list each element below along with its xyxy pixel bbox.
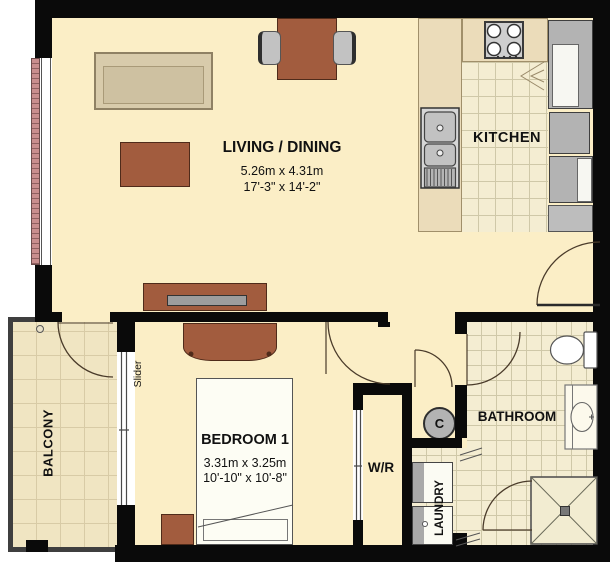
wall-column-nook-bottom [402, 438, 462, 448]
closet-label: W/R [350, 460, 412, 476]
kitchen-tall-cabinet [548, 20, 593, 109]
wall-bathroom-west-upper [455, 322, 467, 334]
sofa-seat [103, 66, 204, 104]
wall-living-bedroom-b [110, 312, 388, 322]
wall-left-upper [35, 18, 52, 58]
balcony-label: BALCONY [41, 409, 56, 477]
living-dining-label: LIVING / DINING [182, 139, 382, 157]
cabinet-door-panel [552, 44, 579, 107]
living-dining-dim-metric: 5.26m x 4.31m [182, 164, 382, 178]
wall-bottom [115, 545, 593, 562]
bedroom-dim-imperial: 10'-10" x 10'-8" [164, 471, 326, 485]
wall-left-lower [35, 265, 52, 322]
dryer-side [413, 507, 424, 544]
dining-chair-left [258, 31, 281, 65]
column-marker: C [423, 407, 456, 440]
nightstand [161, 514, 194, 545]
coffee-table [120, 142, 190, 187]
stove-cooktop [484, 21, 524, 59]
wall-balcony-bedroom-bottom [117, 505, 135, 545]
wall-hall-bathroom [455, 312, 593, 322]
washer [412, 462, 453, 503]
tv-console [143, 283, 267, 311]
bed-pillow [203, 519, 288, 541]
window-sill-hatch [31, 58, 40, 265]
kitchen-counter-left [418, 18, 462, 232]
balcony-railing-left [8, 317, 13, 552]
laundry-label: LAUNDRY [434, 480, 446, 536]
balcony-post [26, 540, 48, 552]
living-dining-dim-imperial: 17'-3" x 14'-2" [182, 180, 382, 194]
slider-label: Slider [132, 361, 144, 388]
bedroom-label: BEDROOM 1 [164, 432, 326, 449]
balcony-railing-bottom [8, 547, 117, 552]
wall-balcony-bedroom-top [117, 322, 135, 352]
wall-closet-west-upper [353, 383, 363, 410]
dining-chair-right [333, 31, 356, 65]
washer-side [413, 463, 424, 502]
dresser [183, 323, 277, 361]
column-label: C [435, 416, 444, 431]
wall-right [593, 0, 610, 562]
wall-closet-west-lower [353, 520, 363, 545]
window-strip [40, 58, 52, 265]
wall-top [35, 0, 610, 18]
kitchen-floor [462, 62, 548, 232]
bathroom-label: BATHROOM [455, 409, 579, 425]
appliance-door-panel [577, 158, 592, 202]
bedroom-dim-metric: 3.31m x 3.25m [164, 456, 326, 470]
dryer [412, 506, 453, 545]
sofa [94, 52, 213, 110]
kitchen-label: KITCHEN [454, 130, 560, 147]
bathroom-floor [467, 322, 593, 545]
wall-living-bedroom-a [52, 312, 62, 322]
kitchen-counter-right [548, 205, 593, 232]
dining-table [277, 18, 337, 80]
kitchen-appliance [549, 156, 593, 203]
balcony-floor [13, 322, 117, 547]
wall-bathroom-west-stub [453, 533, 467, 545]
bedroom-door-jamb [378, 322, 390, 327]
tv [167, 295, 247, 306]
floor-plan: C [0, 0, 610, 570]
